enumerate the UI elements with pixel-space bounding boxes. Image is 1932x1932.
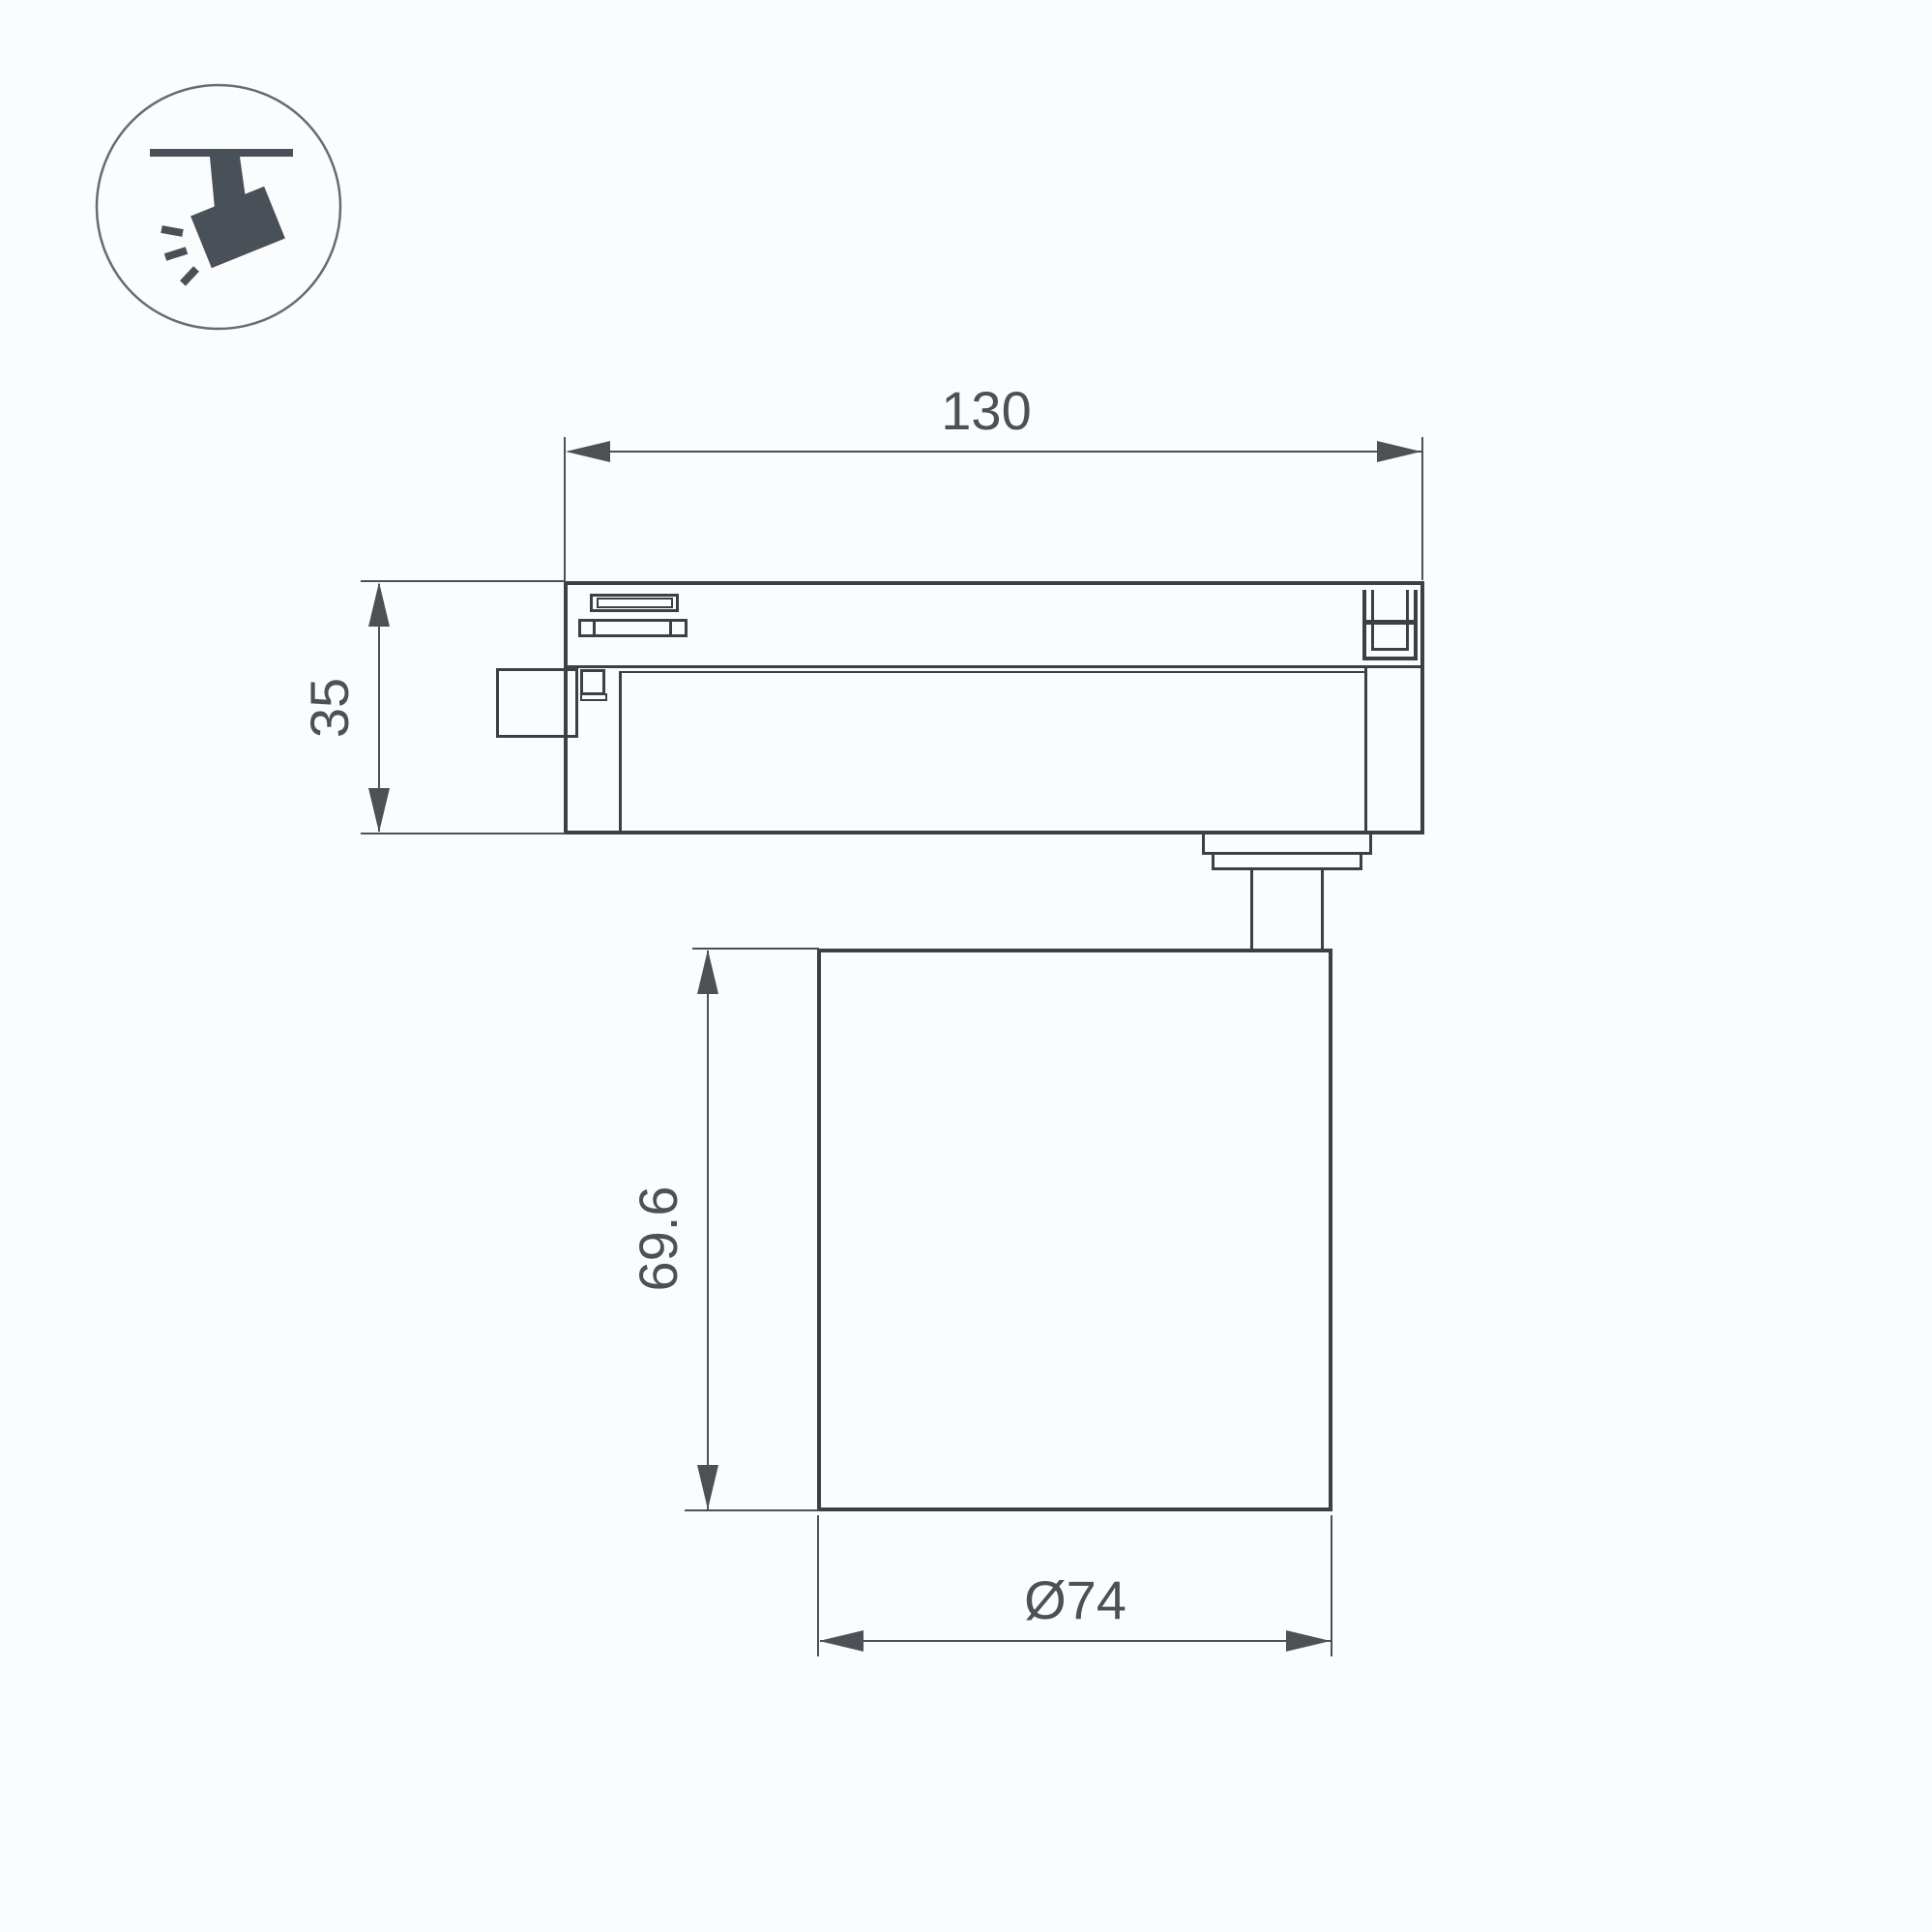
dim-696-arrow-up <box>697 950 718 994</box>
icon-track-bar <box>150 149 293 157</box>
dim-130-arrow-left <box>566 441 610 462</box>
adapter-top-edge <box>564 581 1424 585</box>
side-tab-strip <box>580 693 607 701</box>
adapter-mid-line <box>564 665 1424 668</box>
contact-clip-lower-cap-left <box>593 622 596 634</box>
adapter-divider-right <box>1364 668 1367 832</box>
neck-stem-right <box>1321 869 1324 949</box>
adapter-right-edge <box>1420 581 1424 834</box>
drawing-canvas: 130 35 69.6 Ø74 <box>0 0 1932 1932</box>
dim-130-arrow-right <box>1377 441 1421 462</box>
dim-74-arrow-right <box>1286 1630 1331 1652</box>
dim-35-arrow-down <box>368 788 390 833</box>
icon-light-rays <box>161 229 196 283</box>
neck-flange-step2 <box>1212 855 1362 870</box>
adapter-lower-top-edge <box>619 671 1366 673</box>
dim-696-label: 69.6 <box>631 1186 686 1292</box>
dim-74-ext-right <box>1331 1515 1332 1656</box>
dim-696-line <box>707 951 709 1509</box>
dim-74-label: Ø74 <box>1024 1573 1127 1627</box>
dim-35-ext-top <box>361 580 566 582</box>
neck-flange-step1 <box>1202 834 1372 855</box>
dim-130-ext-right <box>1421 437 1423 580</box>
dim-35-ext-bottom <box>361 833 566 834</box>
dim-74-arrow-left <box>819 1630 864 1652</box>
dim-130-label: 130 <box>941 384 1031 438</box>
side-tab <box>580 669 605 695</box>
neck-stem-left <box>1250 869 1253 949</box>
icon-lamp-body <box>190 187 285 268</box>
side-knob <box>496 668 578 738</box>
adapter-divider-left <box>619 671 622 832</box>
dim-696-arrow-down <box>697 1465 718 1509</box>
contact-clip-lower-cap-right <box>669 622 672 634</box>
dim-130-line <box>569 451 1421 453</box>
latch-clip-bar <box>1366 620 1414 625</box>
lamp-body <box>817 949 1332 1511</box>
dim-35-arrow-up <box>368 582 390 627</box>
track-spotlight-icon <box>95 82 342 332</box>
dim-696-ext-bottom <box>685 1509 819 1511</box>
dim-35-label: 35 <box>303 678 357 738</box>
dim-74-line <box>820 1640 1331 1642</box>
contact-clip-upper-inner <box>597 598 673 608</box>
